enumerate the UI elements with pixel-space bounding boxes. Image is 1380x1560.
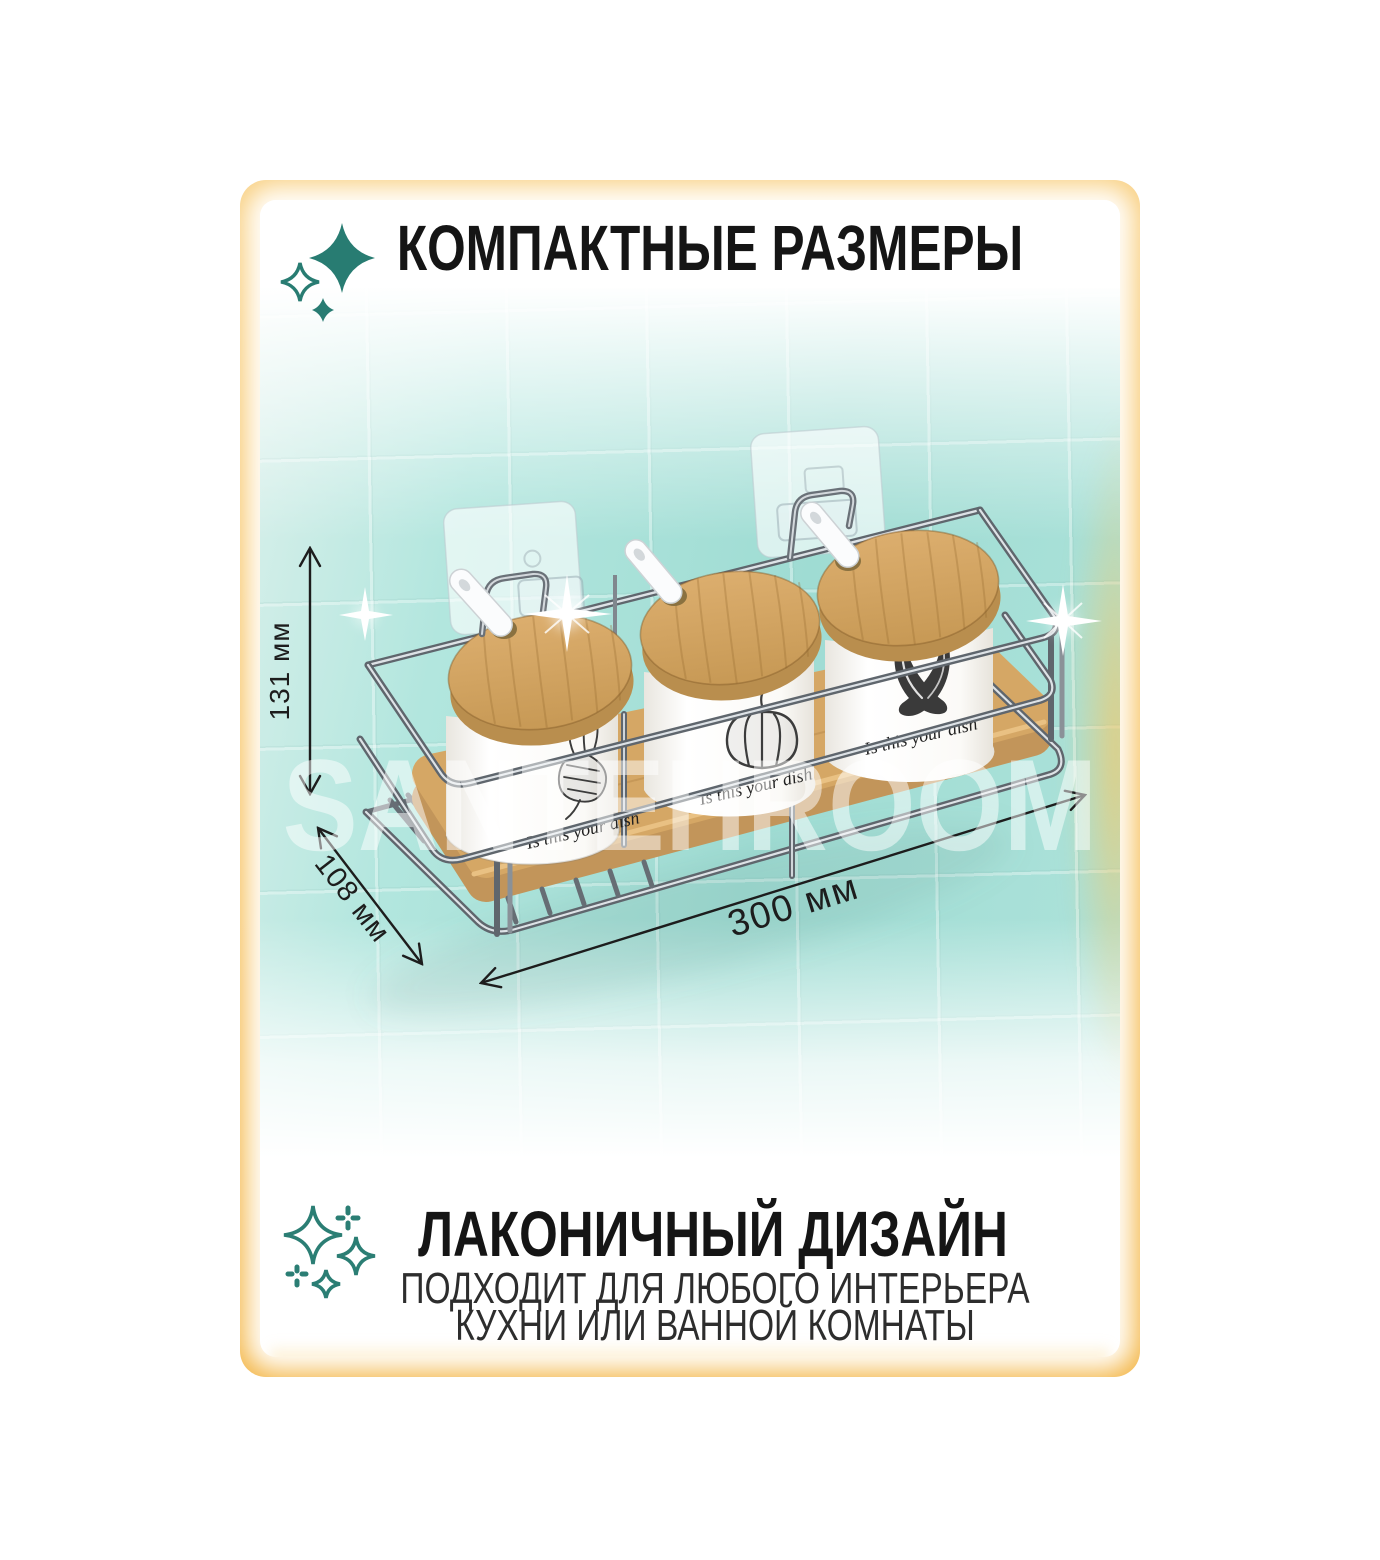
svg-text:131 мм: 131 мм bbox=[264, 622, 295, 721]
